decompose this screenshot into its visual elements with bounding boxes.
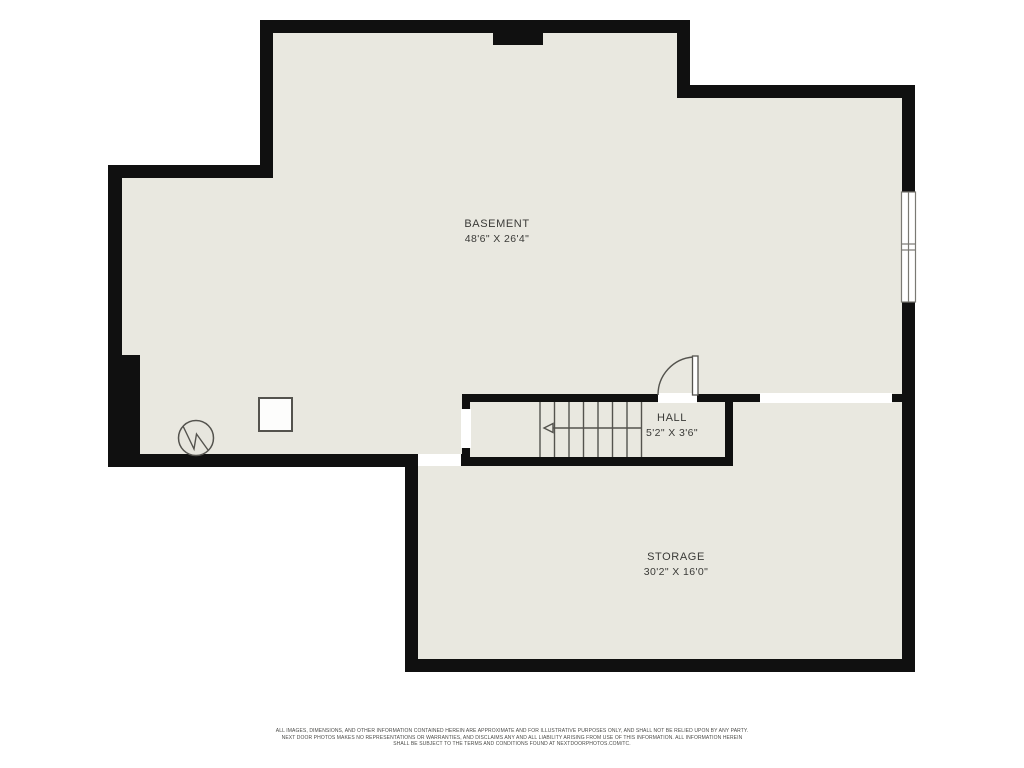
floor-plan-page: BASEMENT 48'6" X 26'4" HALL 5'2" X 3'6" … [0,0,1024,768]
basement-room-label: BASEMENT 48'6" X 26'4" [417,217,577,247]
disclaimer-line-1: ALL IMAGES, DIMENSIONS, AND OTHER INFORM… [0,728,1024,735]
opening-basement-storage-right [760,393,892,403]
chimney-icon [493,28,543,45]
hall-room-name: HALL [612,411,732,426]
basement-room-name: BASEMENT [417,217,577,232]
disclaimer-line-3: SHALL BE SUBJECT TO THE TERMS AND CONDIT… [0,741,1024,748]
storage-room-name: STORAGE [596,550,756,565]
floor-plan-drawing [0,0,1024,768]
water-heater-icon [179,421,214,456]
hall-room-label: HALL 5'2" X 3'6" [612,411,732,441]
storage-room-label: STORAGE 30'2" X 16'0" [596,550,756,580]
disclaimer-text: ALL IMAGES, DIMENSIONS, AND OTHER INFORM… [0,728,1024,748]
opening-stairwell-left [461,409,471,448]
window-icon [902,192,916,302]
opening-doorway [658,393,697,403]
hall-room-dims: 5'2" X 3'6" [612,426,732,441]
basement-room-dims: 48'6" X 26'4" [417,232,577,247]
disclaimer-line-2: NEXT DOOR PHOTOS MAKES NO REPRESENTATION… [0,735,1024,742]
furnace-icon [259,398,292,431]
storage-room-dims: 30'2" X 16'0" [596,565,756,580]
opening-basement-storage [418,454,461,466]
